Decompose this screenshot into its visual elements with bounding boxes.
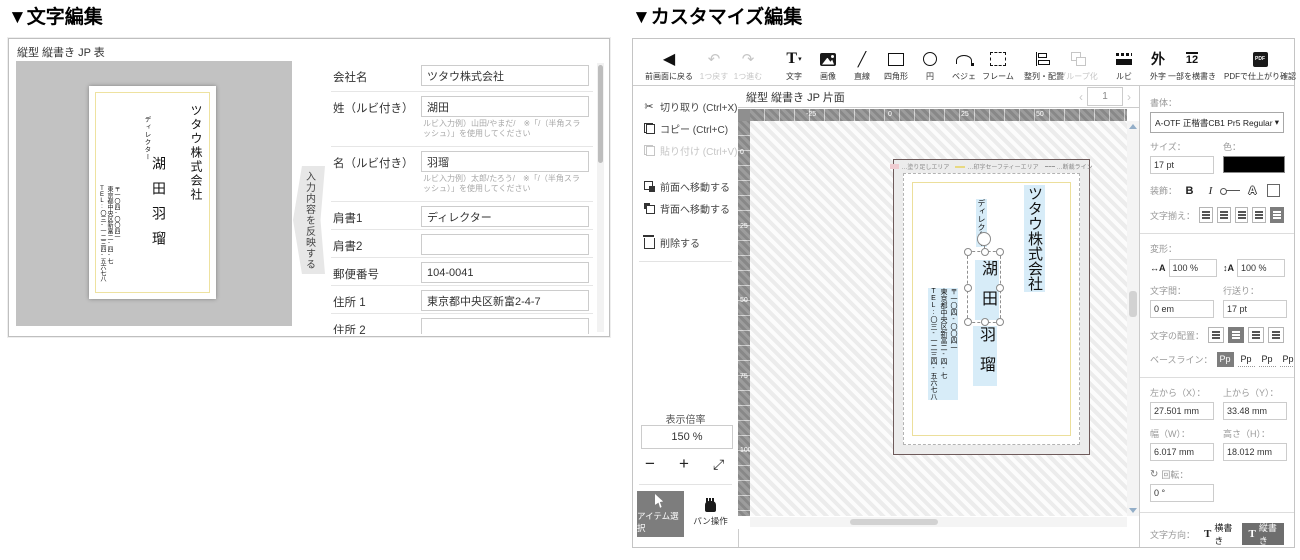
vertical-scroll-thumb[interactable] — [1129, 291, 1137, 317]
image-icon — [820, 53, 836, 66]
zoom-value-input[interactable] — [641, 425, 733, 449]
rectangle-icon — [888, 53, 904, 66]
customize-edit-section-title: ▼カスタマイズ編集 — [632, 2, 802, 29]
form-row-label: 会社名 — [333, 69, 368, 85]
resize-handle[interactable] — [996, 284, 1004, 292]
text-tool-button[interactable]: T▾ 文字 — [779, 42, 809, 82]
vertical-text-icon: T — [1249, 528, 1256, 540]
rotate-label: 回転： — [1161, 468, 1188, 481]
zoom-out-button[interactable]: − — [645, 456, 655, 472]
business-card-preview: ツタウ株式会社 ディレクター 湖田羽瑠 〒一〇四-〇〇四一 東京都中央区新富二-… — [89, 86, 216, 299]
form-row: 住所 1 — [331, 286, 593, 314]
card-artboard: …塗り足しエリア …印字セーフティーエリア …断裁ライン ツタウ株式会社 ディレ… — [893, 159, 1090, 455]
resize-handle[interactable] — [964, 284, 972, 292]
undo-button[interactable]: ↶ 1つ戻す — [699, 42, 729, 82]
canvas-vertical-scrollbar[interactable] — [1127, 121, 1139, 516]
canvas-tab-bar: 縦型 縦書き JP 片面 ‹ › — [738, 86, 1139, 108]
form-row-label: 住所 2 — [333, 322, 366, 334]
chevron-down-icon: ▾ — [798, 55, 802, 63]
form-row: 名（ルビ付き） ルビ入力例）太郎/たろう/ ※「/（半角スラッシュ）」を使用して… — [331, 147, 593, 202]
align-justify-button[interactable] — [1252, 207, 1266, 223]
group-icon — [1071, 52, 1086, 66]
height-input[interactable] — [1223, 443, 1287, 461]
scissors-icon: ✂ — [641, 100, 657, 113]
zoom-label: 表示倍率 — [633, 411, 738, 426]
redo-icon: ↷ — [742, 49, 755, 69]
send-to-back-button[interactable]: 背面へ移動する — [641, 200, 730, 216]
item-select-tool-button[interactable]: アイテム選択 — [637, 491, 684, 537]
partial-horizontal-button[interactable]: 12 一部を横書き — [1177, 42, 1207, 82]
text-box-icon — [1267, 184, 1280, 197]
x-position-input[interactable] — [1150, 402, 1214, 420]
form-row: 郵便番号 — [331, 258, 593, 286]
canvas-viewport[interactable]: …塗り足しエリア …印字セーフティーエリア …断裁ライン ツタウ株式会社 ディレ… — [750, 121, 1127, 516]
text-edit-section-title: ▼文字編集 — [8, 2, 103, 29]
next-page-icon[interactable]: › — [1127, 90, 1131, 104]
form-row: 肩書1 — [331, 202, 593, 230]
size-label: サイズ： — [1150, 140, 1212, 153]
canvas-firstname-text[interactable]: 羽瑠 — [973, 326, 997, 386]
editor-sidebar: ✂ 切り取り (Ctrl+X) コピー (Ctrl+C) 貼り付け (Ctrl+… — [633, 86, 739, 547]
horizontal-scroll-thumb[interactable] — [850, 519, 938, 525]
gaiji-icon: 外 — [1151, 49, 1165, 69]
page-number-input[interactable] — [1087, 87, 1123, 106]
font-size-input[interactable] — [1150, 156, 1214, 174]
editor-toolbar: ◀ 前画面に戻る ↶ 1つ戻す ↷ 1つ進む T▾ 文字 画像 ╱ 直線 四角形 — [633, 39, 1294, 86]
rotate-icon: ↻ — [1150, 469, 1158, 480]
placement-bottom-button[interactable] — [1248, 327, 1264, 343]
ruby-helper-text: ルビ入力例）山田/やまだ/ ※「/（半角スラッシュ）」を使用してください — [423, 119, 583, 139]
cut-button[interactable]: ✂ 切り取り (Ctrl+X) — [641, 98, 738, 114]
lastname-input[interactable] — [421, 96, 589, 117]
x-position-label: 左から（X）： — [1150, 386, 1212, 399]
redo-button[interactable]: ↷ 1つ進む — [733, 42, 763, 82]
scroll-down-icon[interactable] — [1129, 508, 1137, 513]
line-style-button[interactable] — [1223, 183, 1240, 198]
cut-line-swatch — [1045, 166, 1055, 167]
tracking-label: 文字間： — [1150, 284, 1212, 297]
preview-name-text: 湖田羽瑠 — [149, 156, 169, 256]
tracking-input[interactable] — [1150, 300, 1214, 318]
width-input[interactable] — [1150, 443, 1214, 461]
vertical-ruler: 0 25 50 75 100 — [738, 121, 750, 516]
back-button[interactable]: ◀ 前画面に戻る — [643, 42, 695, 82]
form-row: 姓（ルビ付き） ルビ入力例）山田/やまだ/ ※「/（半角スラッシュ）」を使用して… — [331, 92, 593, 147]
ruby-button[interactable]: ルビ — [1109, 42, 1139, 82]
resize-handle[interactable] — [996, 248, 1004, 256]
card-preview-area: ツタウ株式会社 ディレクター 湖田羽瑠 〒一〇四-〇〇四一 東京都中央区新富二-… — [16, 61, 292, 326]
char-align-label: 文字揃え： — [1150, 209, 1195, 222]
company-input[interactable] — [421, 65, 589, 86]
customize-edit-panel: ◀ 前画面に戻る ↶ 1つ戻す ↷ 1つ進む T▾ 文字 画像 ╱ 直線 四角形 — [632, 38, 1295, 548]
group-button[interactable]: グループ化 — [1063, 42, 1093, 82]
form-scrollbar-thumb[interactable] — [598, 65, 603, 163]
line-style-icon — [1223, 190, 1240, 191]
canvas-company-text[interactable]: ツタウ株式会社 — [1024, 185, 1045, 292]
y-position-input[interactable] — [1223, 402, 1287, 420]
placement-spread-button[interactable] — [1268, 327, 1284, 343]
bold-button[interactable]: B — [1181, 183, 1198, 198]
horizontal-scale-input[interactable] — [1169, 259, 1217, 277]
placement-label: 文字の配置： — [1150, 329, 1204, 342]
chevron-down-icon: ▾ — [1275, 117, 1279, 128]
paste-icon — [644, 145, 655, 156]
partial-horizontal-icon: 12 — [1186, 52, 1198, 66]
height-label: 高さ（H）： — [1223, 427, 1285, 440]
postal-input[interactable] — [421, 262, 589, 283]
section-divider — [1140, 512, 1294, 513]
color-label: 色： — [1223, 140, 1285, 153]
text-icon: T▾ — [786, 49, 801, 69]
back-icon: ◀ — [663, 49, 675, 69]
baseline-option-4[interactable]: Pp — [1280, 352, 1294, 367]
placement-middle-button[interactable] — [1228, 327, 1244, 343]
frame-icon — [990, 52, 1006, 66]
line-icon: ╱ — [858, 49, 866, 69]
bezier-tool-button[interactable]: ベジェ — [949, 42, 979, 82]
ruby-icon — [1116, 53, 1132, 66]
outline-text-button[interactable]: A — [1244, 183, 1261, 198]
form-row-label: 姓（ルビ付き） — [333, 100, 414, 116]
width-label: 幅（W）： — [1150, 427, 1212, 440]
circle-icon — [923, 52, 937, 66]
align-icon — [1036, 52, 1052, 66]
text-box-button[interactable] — [1265, 183, 1282, 198]
preview-jobtitle-text: ディレクター — [141, 116, 151, 161]
canvas-tab-label: 縦型 縦書き JP 片面 — [746, 89, 845, 105]
text-direction-label: 文字方向： — [1150, 528, 1195, 541]
form-row-label: 肩書2 — [333, 238, 362, 254]
bezier-icon — [956, 55, 972, 64]
horizontal-writing-button[interactable]: T 横書き — [1197, 523, 1239, 545]
align-top-button[interactable] — [1199, 207, 1213, 223]
undo-icon: ↶ — [708, 49, 721, 69]
sidebar-separator — [639, 484, 732, 485]
text-edit-panel: 縦型 縦書き JP 表 ツタウ株式会社 ディレクター 湖田羽瑠 〒一〇四-〇〇四… — [8, 38, 610, 337]
canvas-area: 縦型 縦書き JP 片面 ‹ › -25 0 25 50 0 25 50 75 … — [738, 86, 1139, 529]
align-bottom-button[interactable] — [1235, 207, 1249, 223]
horizontal-scale-icon: ↔A — [1150, 263, 1166, 273]
bring-to-front-icon — [644, 181, 655, 192]
transform-label: 変形： — [1150, 242, 1284, 255]
cursor-icon — [655, 494, 666, 508]
safety-area-swatch — [955, 166, 965, 168]
resize-handle[interactable] — [996, 318, 1004, 326]
section-divider — [1140, 377, 1294, 378]
form-row-label: 住所 1 — [333, 294, 366, 310]
color-swatch[interactable] — [1223, 156, 1285, 173]
copy-icon — [644, 123, 655, 134]
pan-tool-button[interactable]: パン操作 — [687, 491, 734, 537]
image-tool-button[interactable]: 画像 — [813, 42, 843, 82]
form-row: 会社名 — [331, 61, 593, 92]
paste-button[interactable]: 貼り付け (Ctrl+V) — [641, 142, 738, 158]
font-select-value: A-OTF 正楷書CB1 Pr5 Regular — [1155, 117, 1273, 129]
trash-icon — [644, 238, 655, 249]
vertical-writing-button[interactable]: T 縦書き — [1242, 523, 1284, 545]
preview-address-text: 〒一〇四-〇〇四一 東京都中央区新富二-四-七 TEL:〇三-一二三四-五六七八 — [98, 186, 119, 282]
reflect-arrow: 入力内容を反映する — [293, 166, 325, 274]
canvas-horizontal-scrollbar[interactable] — [750, 517, 1127, 527]
resize-handle[interactable] — [981, 318, 989, 326]
baseline-option-3[interactable]: Pp — [1259, 352, 1276, 367]
address1-input[interactable] — [421, 290, 589, 311]
form-row-label: 名（ルビ付き） — [333, 155, 414, 171]
sidebar-separator — [639, 261, 732, 262]
form-row-label: 郵便番号 — [333, 266, 379, 282]
baseline-option-2[interactable]: Pp — [1238, 352, 1255, 367]
selected-item-box[interactable]: 湖田 — [967, 251, 1001, 323]
circle-tool-button[interactable]: 円 — [915, 42, 945, 82]
vertical-scale-icon: ↕A — [1223, 263, 1234, 273]
rotate-input[interactable] — [1150, 484, 1214, 502]
frame-tool-button[interactable]: フレーム — [983, 42, 1013, 82]
align-center-button[interactable] — [1217, 207, 1231, 223]
placement-top-button[interactable] — [1208, 327, 1224, 343]
resize-handle[interactable] — [964, 248, 972, 256]
baseline-label: ベースライン： — [1150, 353, 1213, 366]
fit-screen-icon[interactable]: ⤢ — [713, 456, 724, 472]
zoom-in-button[interactable]: + — [679, 456, 689, 472]
pdf-icon: PDF — [1253, 52, 1268, 67]
horizontal-ruler: -25 0 25 50 — [750, 109, 1127, 121]
hand-icon — [705, 501, 716, 512]
section-divider — [1140, 233, 1294, 234]
bring-to-front-button[interactable]: 前面へ移動する — [641, 178, 730, 194]
template-name-label: 縦型 縦書き JP 表 — [17, 44, 105, 60]
firstname-input[interactable] — [421, 151, 589, 172]
ruler-corner — [738, 109, 750, 121]
prev-page-icon[interactable]: ‹ — [1079, 90, 1083, 104]
font-label: 書体： — [1150, 96, 1284, 109]
delete-button[interactable]: 削除する — [641, 234, 700, 250]
vertical-scale-input[interactable] — [1237, 259, 1285, 277]
leading-input[interactable] — [1223, 300, 1287, 318]
align-force-justify-button[interactable] — [1270, 207, 1284, 223]
jobtitle2-input[interactable] — [421, 234, 589, 255]
decoration-label: 装飾： — [1150, 184, 1177, 197]
resize-handle[interactable] — [964, 318, 972, 326]
font-select[interactable]: A-OTF 正楷書CB1 Pr5 Regular ▾ — [1150, 112, 1284, 133]
horizontal-text-icon: T — [1204, 528, 1211, 540]
form-row: 肩書2 — [331, 230, 593, 258]
y-position-label: 上から（Y）： — [1223, 386, 1285, 399]
line-tool-button[interactable]: ╱ 直線 — [847, 42, 877, 82]
ruby-helper-text: ルビ入力例）太郎/たろう/ ※「/（半角スラッシュ）」を使用してください — [423, 174, 583, 194]
send-to-back-icon — [644, 203, 655, 214]
text-form: 会社名 姓（ルビ付き） ルビ入力例）山田/やまだ/ ※「/（半角スラッシュ）」を… — [331, 61, 593, 334]
bleed-area-swatch — [890, 164, 899, 169]
properties-panel: 書体： A-OTF 正楷書CB1 Pr5 Regular ▾ サイズ： 色： 装… — [1139, 86, 1294, 547]
address2-input[interactable] — [421, 318, 589, 334]
pdf-preview-button[interactable]: PDF PDFで仕上がり確認 — [1223, 42, 1297, 82]
scroll-up-icon[interactable] — [1129, 124, 1137, 129]
italic-button[interactable]: I — [1202, 183, 1219, 198]
form-row-label: 肩書1 — [333, 210, 362, 226]
reflect-arrow-label: 入力内容を反映する — [302, 171, 317, 270]
baseline-option-1[interactable]: Pp — [1217, 352, 1234, 367]
copy-button[interactable]: コピー (Ctrl+C) — [641, 120, 728, 136]
resize-handle[interactable] — [981, 248, 989, 256]
form-row: 住所 2 — [331, 314, 593, 334]
rectangle-tool-button[interactable]: 四角形 — [881, 42, 911, 82]
canvas-lastname-text[interactable]: 湖田 — [975, 260, 999, 320]
jobtitle1-input[interactable] — [421, 206, 589, 227]
form-scrollbar[interactable] — [597, 63, 604, 332]
leading-label: 行送り： — [1223, 284, 1285, 297]
artboard-legend: …塗り足しエリア …印字セーフティーエリア …断裁ライン — [894, 162, 1089, 171]
align-button[interactable]: 整列・配置 — [1029, 42, 1059, 82]
page-pager: ‹ › — [1079, 87, 1131, 106]
rotation-handle[interactable] — [977, 232, 991, 246]
canvas-address-text[interactable]: 〒一〇四-〇〇四一 東京都中央区新富二-四-七 TEL:〇三-一二三四-五六七八 — [928, 288, 958, 400]
preview-company-text: ツタウ株式会社 — [188, 104, 205, 202]
